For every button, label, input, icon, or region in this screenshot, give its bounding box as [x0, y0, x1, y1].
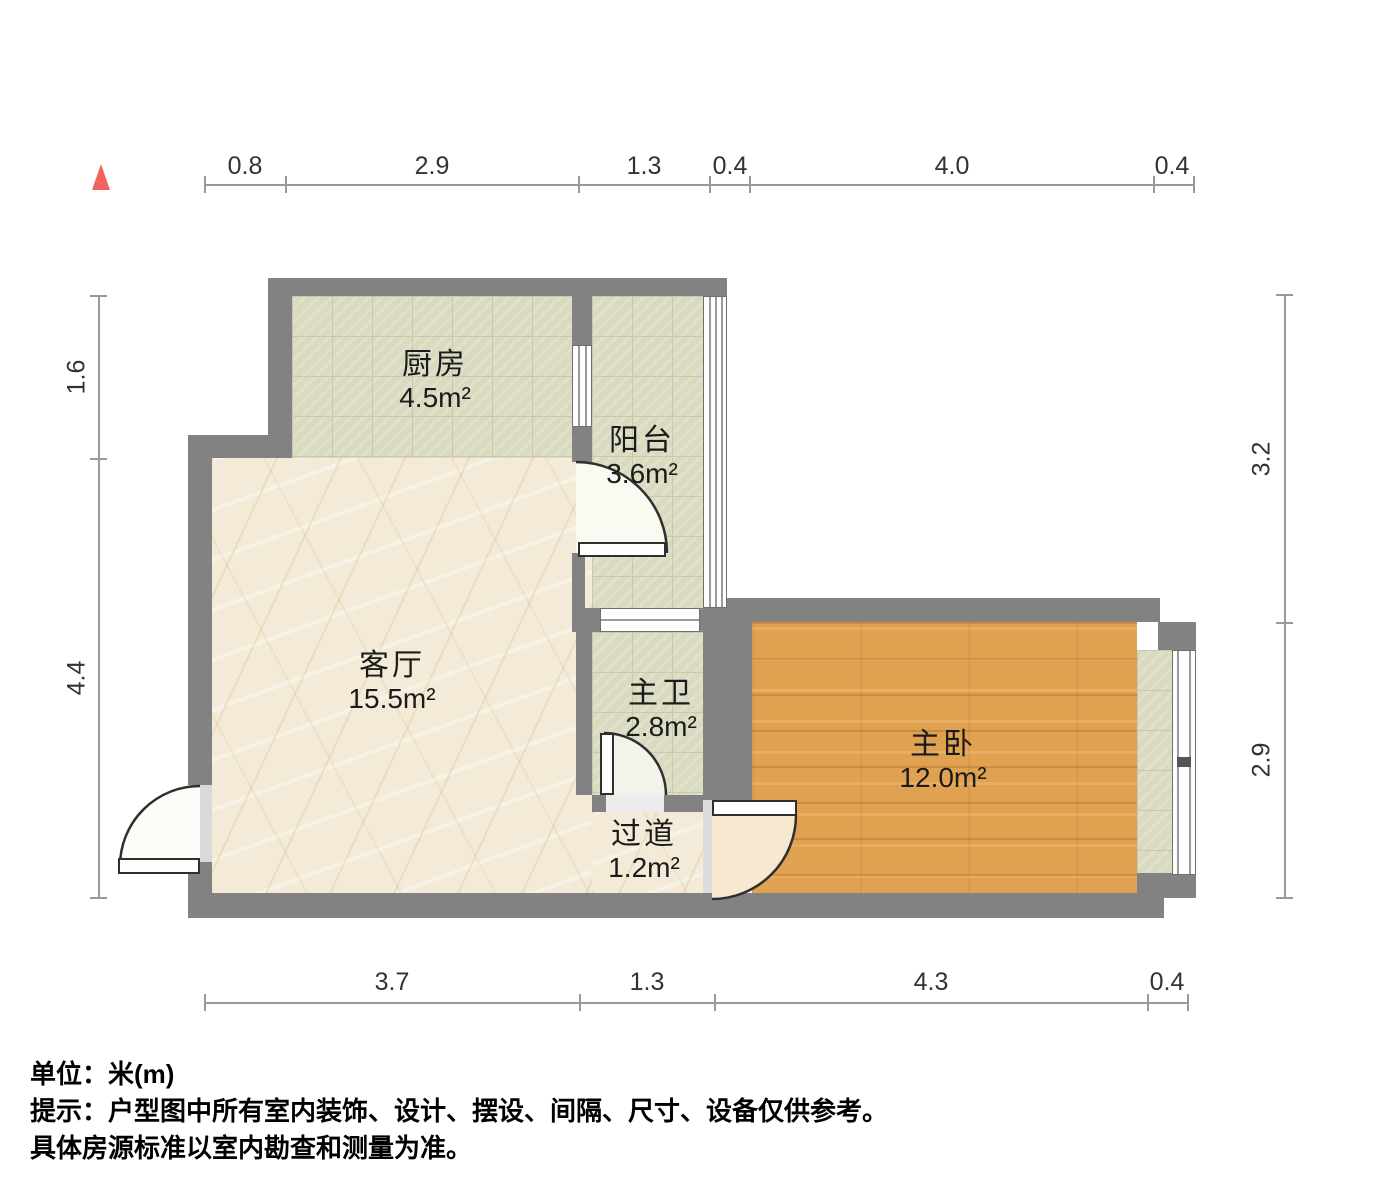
balcony-right-window	[703, 296, 727, 608]
living-room-name: 客厅	[348, 649, 435, 682]
bay-window-top-shoulder	[1158, 622, 1196, 650]
balcony-left-wall-strip	[572, 553, 585, 610]
entrance-door-leaf	[118, 858, 200, 874]
bedroom-name: 主卧	[899, 728, 986, 761]
dim-top-1: 2.9	[415, 152, 450, 181]
dim-bottom-1: 1.3	[630, 968, 665, 997]
bay-window-sill	[1137, 650, 1172, 873]
kitchen-balcony-window	[572, 345, 592, 427]
left-wall-upper	[188, 458, 212, 785]
window-glazing-line	[709, 297, 711, 607]
bottom-dimension-line	[205, 1002, 1188, 1004]
window-glazing-line	[715, 297, 717, 607]
dim-top-4: 4.0	[935, 152, 970, 181]
window-glazing-line	[601, 619, 699, 621]
kitchen-label: 厨房 4.5m²	[399, 348, 471, 414]
left-dimension-line	[98, 296, 100, 898]
disclaimer-line1: 提示：户型图中所有室内装饰、设计、摆设、间隔、尺寸、设备仅供参考。	[30, 1093, 888, 1130]
bay-window-bottom-shoulder	[1137, 873, 1196, 898]
bedroom-top-wall	[727, 598, 1160, 622]
bedroom-threshold	[703, 800, 712, 893]
right-dimension-line	[1284, 295, 1286, 898]
disclaimer-line2: 具体房源标准以室内勘查和测量为准。	[30, 1130, 888, 1167]
window-glazing-line	[585, 346, 587, 426]
dim-top-5: 0.4	[1155, 152, 1190, 181]
kitchen-balcony-wall-lower	[572, 427, 592, 462]
window-mullion-block	[1177, 757, 1191, 767]
step-wall	[188, 435, 292, 458]
balcony-corner-pillar	[572, 608, 600, 632]
dim-bottom-3: 0.4	[1150, 968, 1185, 997]
dim-bottom-2: 4.3	[914, 968, 949, 997]
bathroom-threshold	[606, 795, 664, 812]
bathroom-area: 2.8m²	[625, 710, 697, 743]
bedroom-area: 12.0m²	[899, 761, 986, 794]
window-glazing-line	[721, 297, 723, 607]
kitchen-name: 厨房	[399, 348, 471, 381]
hallway-area: 1.2m²	[608, 851, 680, 884]
balcony-name: 阳台	[606, 424, 678, 457]
hallway-label: 过道 1.2m²	[608, 818, 680, 884]
dim-top-2: 1.3	[627, 152, 662, 181]
balcony-door-leaf	[578, 542, 666, 557]
kitchen-area: 4.5m²	[399, 381, 471, 414]
balcony-area: 3.6m²	[606, 457, 678, 490]
entrance-threshold	[188, 785, 212, 862]
bathroom-door-leaf	[600, 733, 614, 795]
bedroom-left-wall	[703, 622, 752, 800]
footnotes: 单位：米(m) 提示：户型图中所有室内装饰、设计、摆设、间隔、尺寸、设备仅供参考…	[30, 1056, 888, 1167]
bedroom-label: 主卧 12.0m²	[899, 728, 986, 794]
bathroom-name: 主卫	[625, 677, 697, 710]
balcony-bathroom-window	[600, 608, 700, 632]
hallway-name: 过道	[608, 818, 680, 851]
top-wall	[268, 278, 727, 296]
dim-left-1: 4.4	[63, 661, 92, 696]
kitchen-left-wall	[268, 278, 292, 458]
dim-left-0: 1.6	[63, 360, 92, 395]
top-dimension-line	[205, 184, 1194, 186]
dim-bottom-0: 3.7	[375, 968, 410, 997]
kitchen-balcony-wall-upper	[572, 296, 592, 345]
bedroom-door-leaf	[712, 800, 797, 816]
bottom-wall	[188, 893, 1164, 918]
living-room-label: 客厅 15.5m²	[348, 649, 435, 715]
bathroom-left-wall	[576, 632, 592, 795]
unit-note: 单位：米(m)	[30, 1056, 888, 1093]
bedroom-bay-window	[1172, 650, 1196, 875]
dim-right-1: 2.9	[1248, 743, 1277, 778]
dim-top-3: 0.4	[713, 152, 748, 181]
balcony-label: 阳台 3.6m²	[606, 424, 678, 490]
window-glazing-line	[578, 346, 580, 426]
bathroom-label: 主卫 2.8m²	[625, 677, 697, 743]
floor-plan: 厨房 4.5m² 阳台 3.6m² 客厅 15.5m² 主卫 2.8m² 主卧 …	[0, 0, 1382, 1194]
dim-top-0: 0.8	[228, 152, 263, 181]
dim-right-0: 3.2	[1248, 442, 1277, 477]
living-room-area: 15.5m²	[348, 682, 435, 715]
bathroom-bottom-wall-left	[592, 795, 606, 812]
north-compass-icon	[92, 164, 110, 190]
